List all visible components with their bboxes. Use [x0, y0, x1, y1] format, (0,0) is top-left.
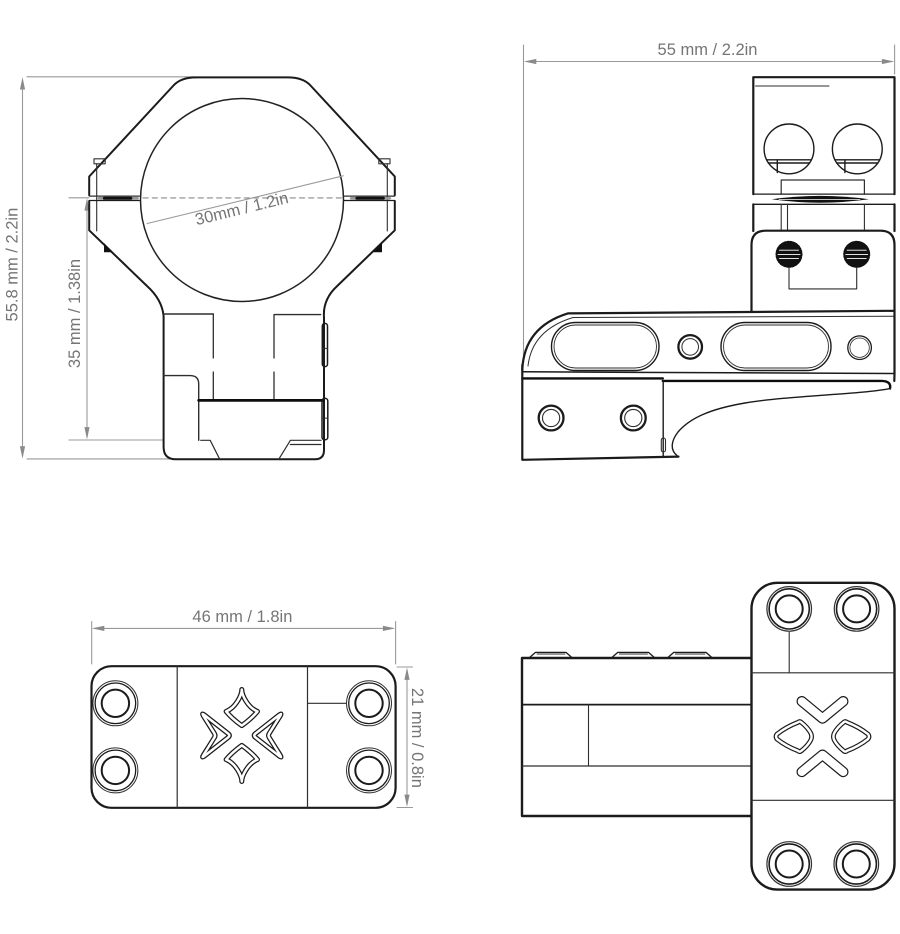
- svg-text:55.8 mm / 2.2in: 55.8 mm / 2.2in: [4, 208, 22, 322]
- svg-text:35 mm / 1.38in: 35 mm / 1.38in: [66, 259, 84, 368]
- svg-text:21 mm / 0.8in: 21 mm / 0.8in: [408, 688, 426, 788]
- svg-text:46 mm / 1.8in: 46 mm / 1.8in: [192, 608, 292, 626]
- svg-text:55 mm / 2.2in: 55 mm / 2.2in: [658, 41, 758, 59]
